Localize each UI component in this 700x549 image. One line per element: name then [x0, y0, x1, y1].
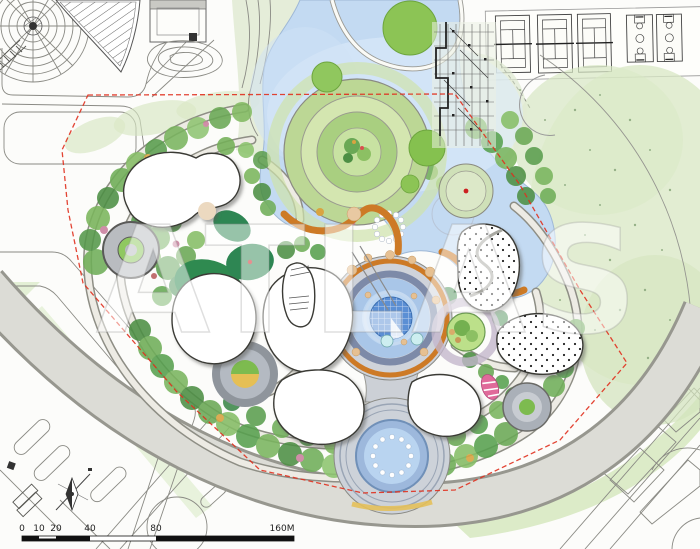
scale-label-80: 80	[150, 524, 162, 534]
scale-label-40: 40	[84, 524, 96, 534]
scale-label-20: 20	[50, 524, 62, 534]
park-master-plan: ATLAS 0 10 20 40 80 160M	[0, 0, 700, 549]
tennis-court-2	[535, 14, 574, 73]
basketball-court-2	[656, 14, 682, 62]
basketball-court-1	[626, 15, 653, 63]
scale-label-160: 160M	[270, 524, 295, 534]
tennis-court-3	[575, 14, 613, 73]
red-marker-dot	[464, 189, 469, 194]
pavilion-south	[274, 370, 364, 444]
scale-label-10: 10	[33, 524, 45, 534]
scale-label-0: 0	[19, 524, 25, 534]
watermark: ATLAS	[96, 195, 644, 367]
mini-plaza-southeast	[503, 383, 551, 431]
small-building-top	[150, 0, 206, 42]
